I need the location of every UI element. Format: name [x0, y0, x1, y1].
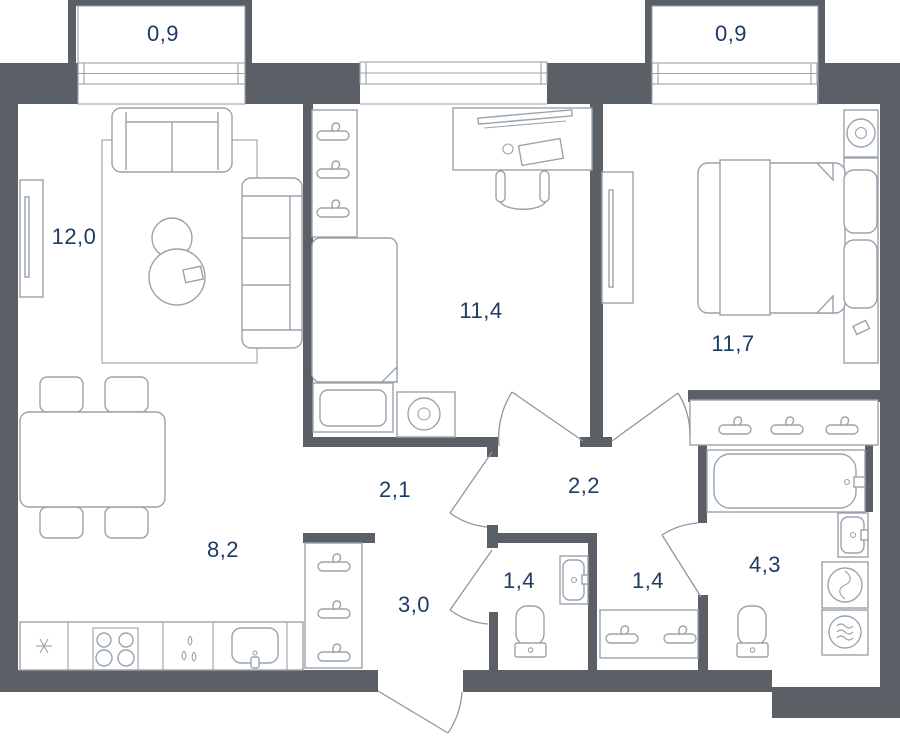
label-study: 11,4: [459, 298, 502, 323]
sofa: [112, 108, 232, 172]
door-bedroom: [612, 393, 690, 441]
floor-plan: 0,9 12,0 11,4 11,7 0,9 2,1 2,2 8,2 3,0 1…: [0, 0, 900, 736]
blanket: [720, 160, 770, 315]
label-dressing: 1,4: [632, 568, 664, 593]
faucet-icon: [251, 657, 259, 668]
washbasin-bathroom: [838, 513, 868, 557]
faucet-icon: [854, 477, 865, 487]
desk: [453, 108, 592, 170]
loveseat: [242, 178, 302, 348]
door-study: [499, 392, 583, 446]
label-toilet: 1,4: [503, 568, 535, 593]
floor-plan-svg: 0,9 12,0 11,4 11,7 0,9 2,1 2,2 8,2 3,0 1…: [0, 0, 900, 736]
kitchen-counter: [20, 622, 303, 670]
dresser: [313, 383, 393, 432]
dryer: [822, 610, 868, 655]
label-living-room: 12,0: [52, 224, 97, 249]
pillow: [844, 170, 877, 233]
faucet-icon: [861, 530, 868, 540]
pillow: [844, 240, 877, 308]
door-toilet: [450, 550, 492, 624]
label-balcony-right: 0,9: [715, 21, 747, 46]
label-hall: 2,2: [568, 473, 600, 498]
bathroom-fixtures: [690, 400, 878, 657]
nightstand-lamp: [844, 110, 878, 157]
wardrobe-bathroom-nook: [690, 400, 878, 445]
label-hallway: 2,1: [379, 477, 411, 502]
door-entrance: [378, 691, 462, 733]
corridor-furniture: [305, 543, 362, 668]
label-corridor: 3,0: [398, 592, 430, 617]
book-icon: [183, 266, 203, 282]
label-bedroom: 11,7: [711, 331, 754, 356]
study-furniture: [312, 108, 592, 437]
door-hallway: [450, 452, 492, 527]
lamp-table: [397, 392, 455, 437]
bedroom-furniture: [602, 110, 878, 363]
faucet-icon: [582, 575, 588, 584]
kitchen-furniture: [20, 377, 303, 670]
round-coffee-tables: [149, 218, 205, 305]
tv-console-bedroom: [602, 172, 633, 303]
washing-machine: [822, 562, 868, 608]
toilet-icon: [737, 606, 768, 657]
bathtub: [707, 450, 865, 512]
desk-chair: [496, 171, 549, 209]
label-kitchen: 8,2: [207, 537, 239, 562]
tv-icon: [609, 190, 613, 287]
dining-table: [20, 412, 165, 507]
wardrobe-corridor: [305, 543, 362, 668]
dressing-fixtures: [600, 610, 698, 658]
wardrobe-study: [312, 110, 357, 237]
label-balcony-left: 0,9: [147, 21, 179, 46]
kitchen-sink: [232, 628, 278, 668]
single-bed: [312, 238, 397, 382]
toilet-icon: [515, 606, 546, 657]
tv-icon: [25, 197, 29, 277]
tv-console: [20, 180, 43, 297]
label-bathroom: 4,3: [749, 552, 781, 577]
washbasin-toilet: [560, 556, 588, 604]
door-bathroom: [662, 523, 701, 597]
